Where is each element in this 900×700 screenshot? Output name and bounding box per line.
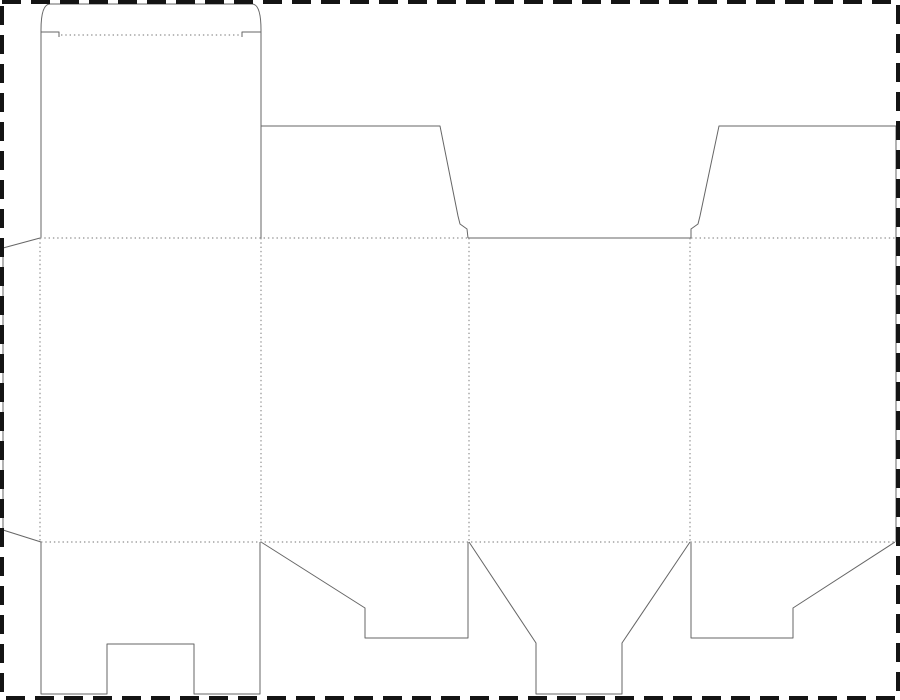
sheet-dashed-border bbox=[2, 2, 898, 698]
tuck-shoulder-right bbox=[242, 32, 261, 37]
bottom-tuck-flap-notched bbox=[41, 542, 260, 694]
tuck-shoulder-left bbox=[41, 32, 59, 37]
top-dust-flap-right bbox=[691, 126, 896, 238]
tuck-lid-outline bbox=[41, 4, 261, 238]
box-dieline-drawing bbox=[0, 0, 900, 700]
glue-flap-outline bbox=[3, 238, 41, 542]
bottom-funnel-flap bbox=[469, 542, 690, 694]
bottom-flap-left-angled bbox=[261, 542, 468, 638]
top-dust-flap-left bbox=[261, 126, 468, 238]
dieline-page bbox=[0, 0, 900, 700]
bottom-flap-right-angled bbox=[691, 542, 895, 638]
